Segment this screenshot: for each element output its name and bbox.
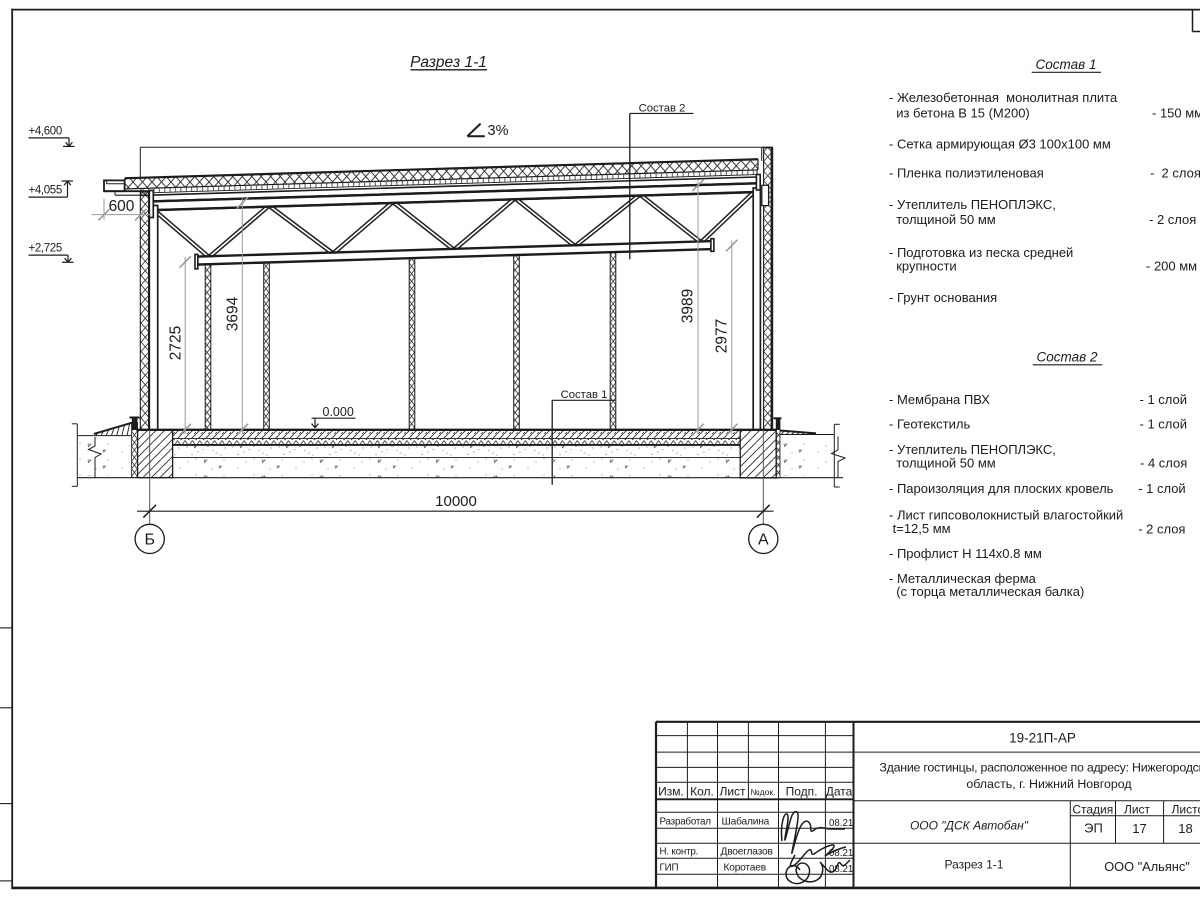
svg-text:ЭП: ЭП [1084,821,1103,836]
svg-text:Состав 2: Состав 2 [1037,350,1098,365]
svg-text:- Мембрана ПВХ: - Мембрана ПВХ [889,392,990,407]
svg-text:t=12,5 мм: t=12,5 мм [889,521,951,536]
svg-text:Подп.: Подп. [786,785,818,799]
svg-text:- Геотекстиль: - Геотекстиль [889,417,970,432]
svg-text:19-21П-АР: 19-21П-АР [1009,730,1076,745]
svg-text:ООО "ДСК Автобан": ООО "ДСК Автобан" [910,818,1029,832]
svg-text:600: 600 [109,198,135,215]
svg-text:08.21: 08.21 [829,818,853,829]
svg-text:2725: 2725 [168,326,185,360]
svg-text:Б: Б [144,532,155,549]
svg-text:- 150 мм: - 150 мм [1152,105,1200,120]
svg-text:3989: 3989 [680,289,697,323]
svg-text:крупности: крупности [889,259,957,274]
svg-text:Лист: Лист [1124,802,1151,816]
svg-text:3694: 3694 [225,296,242,331]
svg-text:Разрез 1-1: Разрез 1-1 [410,54,487,71]
svg-text:- 4 слоя: - 4 слоя [1140,455,1187,470]
svg-text:- Утеплитель ПЕНОПЛЭКС,: - Утеплитель ПЕНОПЛЭКС, [889,197,1056,212]
svg-text:- 2 слоя: - 2 слоя [1149,212,1196,227]
svg-text:- Грунт основания: - Грунт основания [889,290,997,305]
svg-text:- Железобетонная монолитная п: - Железобетонная монолитная плита [889,90,1118,105]
svg-text:- 2 слоя: - 2 слоя [1150,165,1200,180]
svg-text:+2,725: +2,725 [29,243,62,255]
svg-text:Стадия: Стадия [1072,802,1113,816]
svg-text:толщиной 50 мм: толщиной 50 мм [889,212,996,227]
svg-text:0.000: 0.000 [323,405,354,419]
svg-text:Шабалина: Шабалина [722,816,770,828]
svg-text:(с торца металлическая балка): (с торца металлическая балка) [889,584,1084,599]
svg-text:№док.: №док. [751,787,776,797]
svg-text:- Профлист Н 114х0.8 мм: - Профлист Н 114х0.8 мм [889,546,1042,561]
svg-text:+4,600: +4,600 [29,126,62,138]
svg-text:- 1 слой: - 1 слой [1138,481,1186,496]
svg-text:- Лист гипсоволокнистый влагос: - Лист гипсоволокнистый влагостойкий [889,507,1123,522]
svg-text:- 1 слой: - 1 слой [1140,392,1188,407]
svg-text:Здание гостинцы, расположенное: Здание гостинцы, расположенное по адресу… [879,761,1200,775]
svg-text:10000: 10000 [435,493,477,510]
svg-text:Лист: Лист [719,785,746,799]
svg-text:- 200 мм: - 200 мм [1146,259,1197,274]
svg-text:- Пленка полиэтиленовая: - Пленка полиэтиленовая [889,165,1044,180]
svg-text:из бетона В 15 (М200): из бетона В 15 (М200) [889,105,1030,120]
svg-text:Состав 1: Состав 1 [561,389,608,401]
svg-text:17: 17 [1132,821,1146,836]
svg-text:Состав 2: Состав 2 [639,102,686,114]
svg-text:Разрез 1-1: Разрез 1-1 [945,858,1004,872]
svg-text:Изм.: Изм. [658,785,684,799]
svg-text:А: А [758,532,769,549]
svg-text:ГИП: ГИП [660,863,679,874]
svg-text:18: 18 [1178,821,1192,836]
svg-text:Кол.: Кол. [690,785,714,799]
svg-text:- Пароизоляция для плоских кро: - Пароизоляция для плоских кровель [889,481,1114,496]
svg-text:- Сетка армирующая Ø3 100х100: - Сетка армирующая Ø3 100х100 мм [889,137,1111,152]
svg-text:+4,055: +4,055 [29,185,62,197]
svg-text:Н. контр.: Н. контр. [660,847,699,858]
svg-text:3%: 3% [488,123,509,139]
svg-text:Дата: Дата [826,785,853,799]
svg-text:Двоеглазов: Двоеглазов [721,847,773,858]
svg-text:Листов: Листов [1172,802,1200,816]
svg-text:ООО "Альянс": ООО "Альянс" [1104,859,1190,874]
svg-text:- 2 слоя: - 2 слоя [1138,522,1185,537]
svg-text:толщиной 50 мм: толщиной 50 мм [889,455,996,470]
svg-text:Состав 1: Состав 1 [1036,57,1097,72]
svg-text:2977: 2977 [714,319,731,353]
svg-text:область, г. Нижний Новгород: область, г. Нижний Новгород [966,777,1132,791]
svg-text:- 1 слой: - 1 слой [1140,417,1188,432]
svg-text:Коротаев: Коротаев [724,863,766,874]
svg-text:Разработал: Разработал [660,817,712,828]
